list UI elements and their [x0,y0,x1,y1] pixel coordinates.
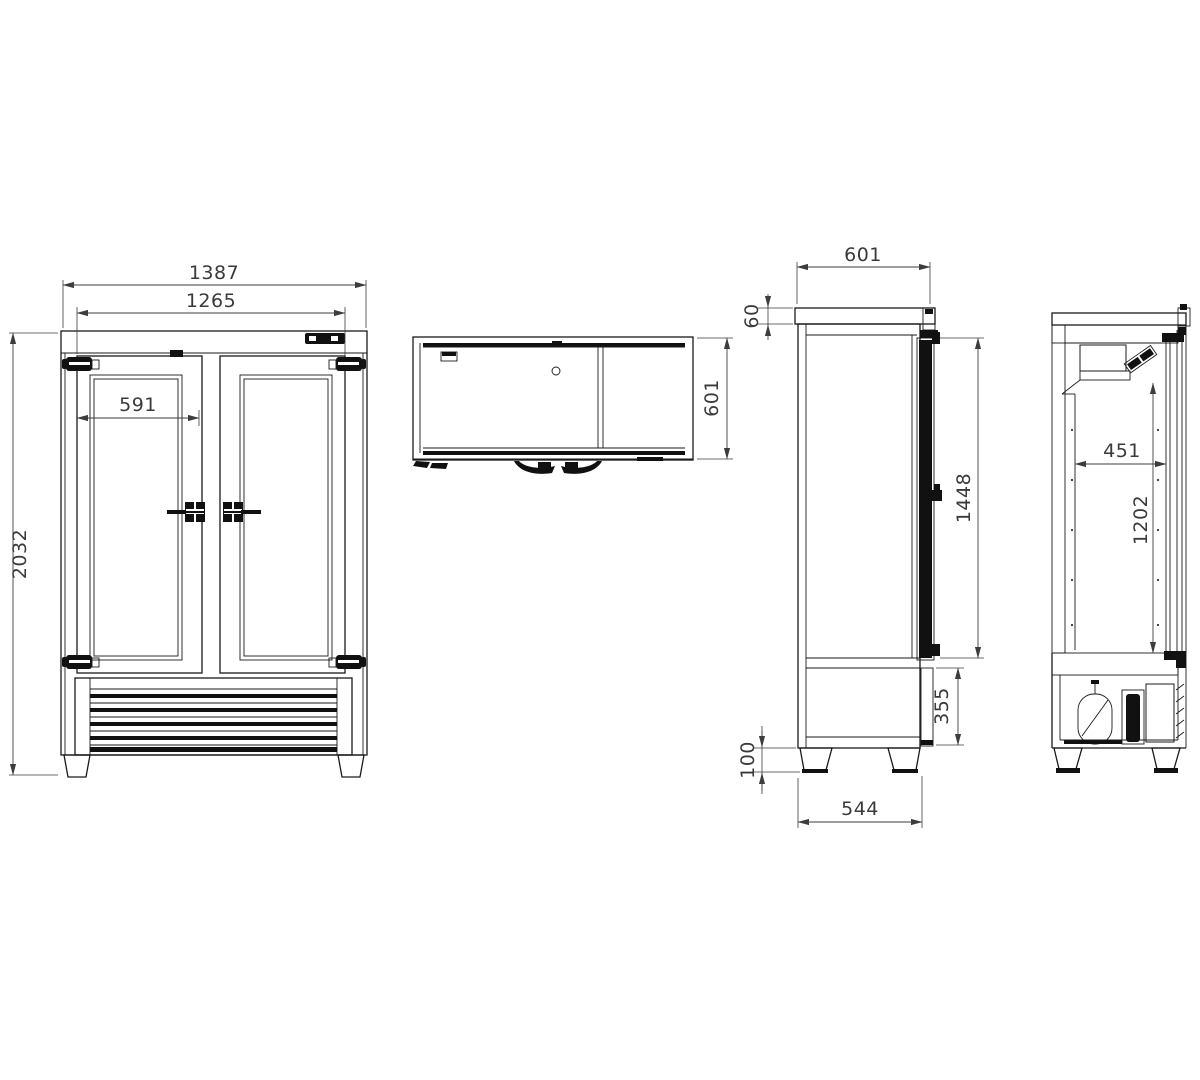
dim-front-overall-width: 1387 [189,262,239,284]
dim-front-overall-height: 2032 [9,529,31,579]
dim-side-feet-depth: 544 [841,798,879,820]
controller-badge [305,333,345,344]
dim-section-interior-height: 1202 [1130,495,1152,545]
dim-side-leg-height: 100 [737,741,759,779]
dim-front-door-leaf-width: 591 [119,394,157,416]
dim-front-doors-width: 1265 [186,290,236,312]
dim-side-top-panel: 60 [741,303,763,328]
background [0,0,1200,1080]
drawing-canvas: 1387 1265 591 2032 [0,0,1200,1080]
technical-drawing: 1387 1265 591 2032 [0,0,1200,1080]
door-stop-clip [170,350,183,357]
dim-section-interior-depth: 451 [1103,440,1141,462]
dim-top-depth: 601 [701,379,723,417]
top-foot-mark-2 [430,463,448,469]
top-foot-mark-3 [637,457,663,461]
dim-side-door-height: 1448 [953,473,975,523]
dim-side-depth: 601 [844,244,882,266]
dim-side-machine-panel: 355 [931,687,953,725]
